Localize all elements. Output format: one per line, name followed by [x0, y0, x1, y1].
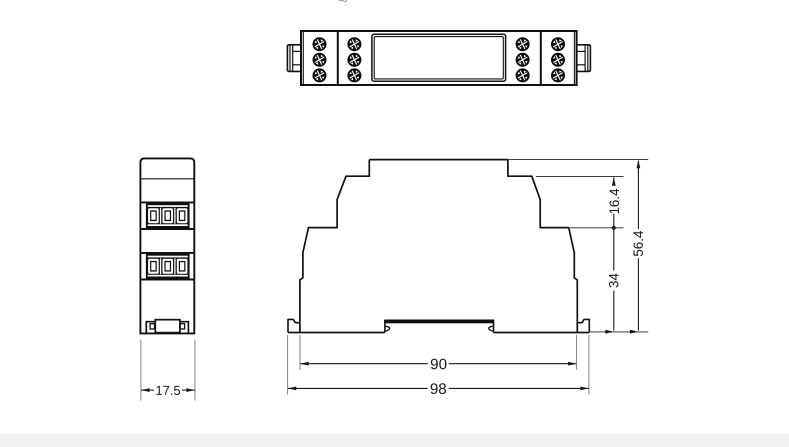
svg-text:34: 34 [607, 273, 622, 288]
svg-text:56.4: 56.4 [631, 230, 646, 257]
svg-text:90: 90 [430, 356, 447, 373]
svg-text:17.5: 17.5 [155, 383, 180, 398]
svg-text:16.4: 16.4 [607, 188, 622, 215]
svg-text:98: 98 [430, 381, 447, 398]
